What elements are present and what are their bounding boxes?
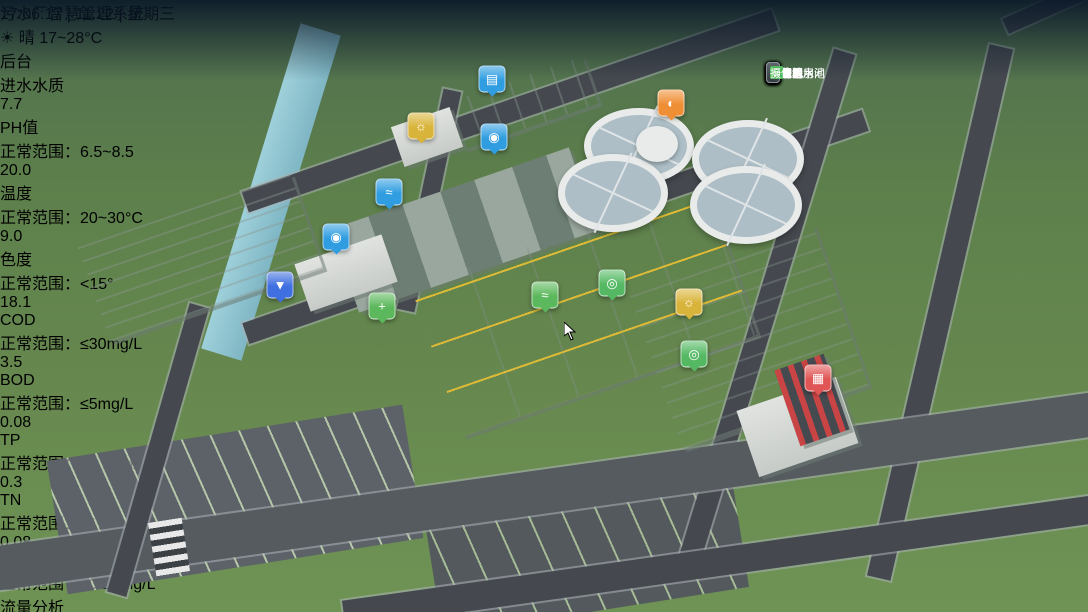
map-marker-提升泵[interactable]: ◉ <box>481 124 508 151</box>
dashboard-root: ▤◐☼◉≈◉▼+≈◎☼◎▦ ≈生物池◎污泥脱水间◉提升泵▦格栅☼鼓风机▼过滤池+… <box>0 0 1088 612</box>
map-marker-摄像头[interactable]: ◎ <box>681 341 708 368</box>
map-marker-曝气池[interactable]: ≈ <box>376 179 403 206</box>
map-marker-过滤池[interactable]: ▼ <box>267 272 294 299</box>
map-markers-layer: ▤◐☼◉≈◉▼+≈◎☼◎▦ <box>0 0 1088 612</box>
map-marker-生物池[interactable]: ≈ <box>532 282 559 309</box>
facility-button-摄像头[interactable]: ◎摄像头 <box>766 62 780 83</box>
map-marker-沉淀池[interactable]: ▤ <box>479 66 506 93</box>
map-marker-摄像头[interactable]: ◎ <box>599 270 626 297</box>
map-marker-排海泵房[interactable]: ◉ <box>323 224 350 251</box>
map-marker-加药间[interactable]: + <box>369 293 396 320</box>
map-3d-view[interactable]: ▤◐☼◉≈◉▼+≈◎☼◎▦ ≈生物池◎污泥脱水间◉提升泵▦格栅☼鼓风机▼过滤池+… <box>0 0 1088 612</box>
map-marker-鼓风机[interactable]: ☼ <box>676 289 703 316</box>
map-marker-格栅[interactable]: ▦ <box>805 365 832 392</box>
map-marker-刮泥机[interactable]: ◐ <box>658 90 685 117</box>
map-marker-鼓风机[interactable]: ☼ <box>408 113 435 140</box>
